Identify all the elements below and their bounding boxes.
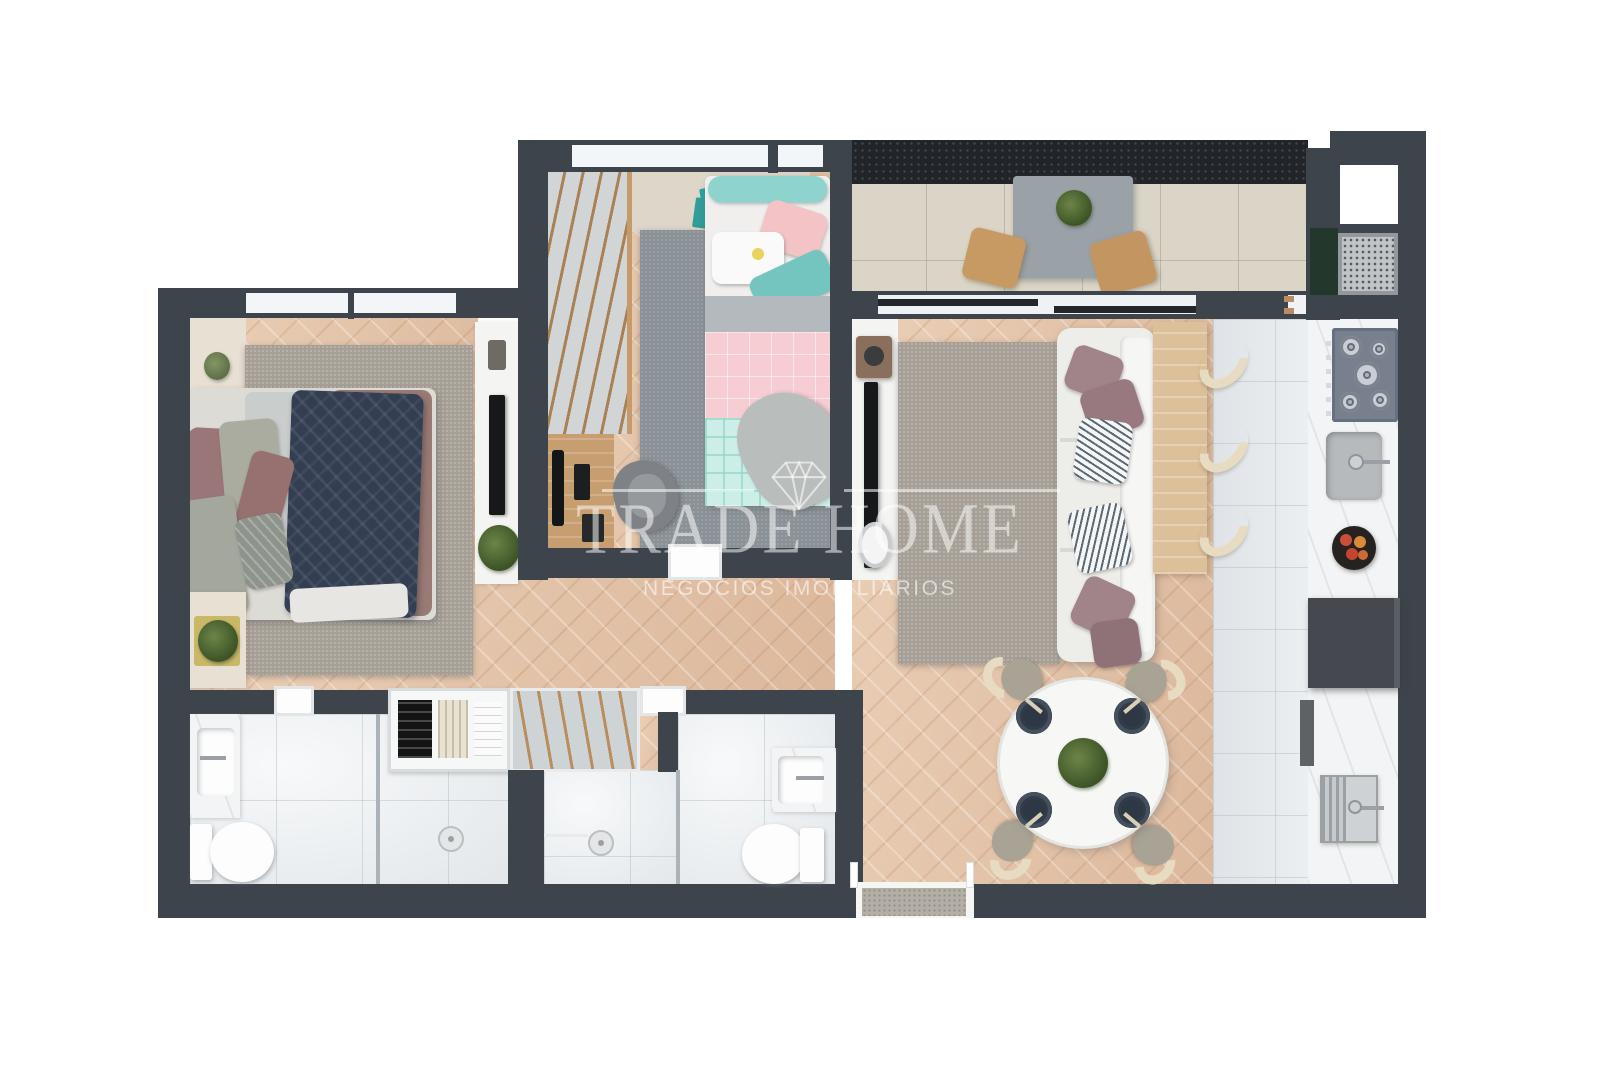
teal-headboard <box>708 176 827 202</box>
green-marble-ledge <box>1310 228 1338 302</box>
centerpiece-plant-icon <box>1058 738 1108 788</box>
towels-icon <box>474 702 502 756</box>
bedroom2-window <box>572 142 823 170</box>
entry-doormat <box>862 888 966 916</box>
laundry-washboard-icon <box>1322 777 1346 841</box>
wall-bath-top-a <box>190 690 274 714</box>
bath1-faucet-icon <box>200 756 226 760</box>
star-accent-icon <box>752 248 764 260</box>
kitchen-faucet-base-icon <box>1348 454 1364 470</box>
wall-bottom-b <box>972 884 1426 918</box>
gate-hinge-icon-2 <box>1284 308 1294 314</box>
bath1-glass-partition <box>376 714 380 884</box>
wall-service-bottom <box>1306 295 1400 319</box>
fruit-icon-1 <box>1340 534 1352 546</box>
wall-left-outer <box>158 288 190 918</box>
gas-cooktop <box>1332 328 1398 422</box>
folded-clothes-dark-icon <box>398 700 432 758</box>
toilet1-tank <box>190 824 212 880</box>
watermark-subtitle: NEGÓCIOS IMOBILIÁRIOS <box>400 577 1200 601</box>
floor-plan-render: TRADE HOME NEGÓCIOS IMOBILIÁRIOS <box>0 0 1600 1066</box>
fruit-icon-4 <box>1358 550 1368 560</box>
entry-door-frame-icon-2 <box>966 862 974 888</box>
bath2-shower-drain <box>588 830 614 856</box>
decor-sprig-icon <box>204 352 230 380</box>
laundry-faucet-base-icon <box>1348 800 1362 814</box>
fruit-icon-3 <box>1346 548 1358 560</box>
toilet2-tank <box>800 828 824 882</box>
master-window <box>246 290 456 316</box>
sliding-door-rail-2 <box>1054 306 1196 313</box>
cooktop-knobs-icon <box>1326 336 1331 416</box>
wall-shower-divider <box>508 770 544 884</box>
service-window-shaft <box>1340 166 1398 224</box>
wall-bath-top-c <box>686 690 835 714</box>
wall-bath-top-b <box>314 690 390 714</box>
toilet2-bowl <box>742 824 806 884</box>
entry-door-frame-icon <box>850 862 858 888</box>
bed-sheet-fold <box>289 583 409 623</box>
refrigerator <box>1308 598 1400 688</box>
sofa-pillow-striped-1 <box>1072 417 1134 486</box>
bath2-glass-partition <box>676 770 680 884</box>
speaker-icon <box>864 346 884 366</box>
sliding-door-rail-1 <box>878 299 1038 306</box>
balcony-plant-icon <box>1056 190 1092 226</box>
knit-sweater-icon <box>438 700 468 758</box>
toilet1-bowl <box>210 822 274 882</box>
built-in-oven-strip <box>1300 700 1314 766</box>
drying-rack <box>510 688 640 772</box>
bathroom1-door <box>274 686 314 716</box>
bath1-shower-drain <box>438 826 464 852</box>
bath2-shower-arm-icon <box>544 834 588 837</box>
watermark-title: TRADE HOME <box>400 488 1200 571</box>
bathroom2-shower-floor <box>544 770 678 884</box>
plant-icon <box>198 620 238 662</box>
open-wardrobe-rails <box>548 172 632 434</box>
bath2-basin <box>778 756 824 804</box>
kitchen-floor <box>1213 319 1308 884</box>
wall-right-outer <box>1398 131 1426 918</box>
wall-bottom-a <box>158 884 858 918</box>
ac-condenser-grille-icon <box>1338 233 1398 295</box>
wall-closet-stub <box>658 712 678 772</box>
sheet-fold-gray <box>705 296 830 332</box>
fruit-icon-2 <box>1354 536 1366 548</box>
media-decor <box>488 340 506 370</box>
bath2-faucet-icon <box>796 776 824 780</box>
gate-hinge-icon <box>1284 296 1294 302</box>
bath1-basin <box>197 728 235 796</box>
